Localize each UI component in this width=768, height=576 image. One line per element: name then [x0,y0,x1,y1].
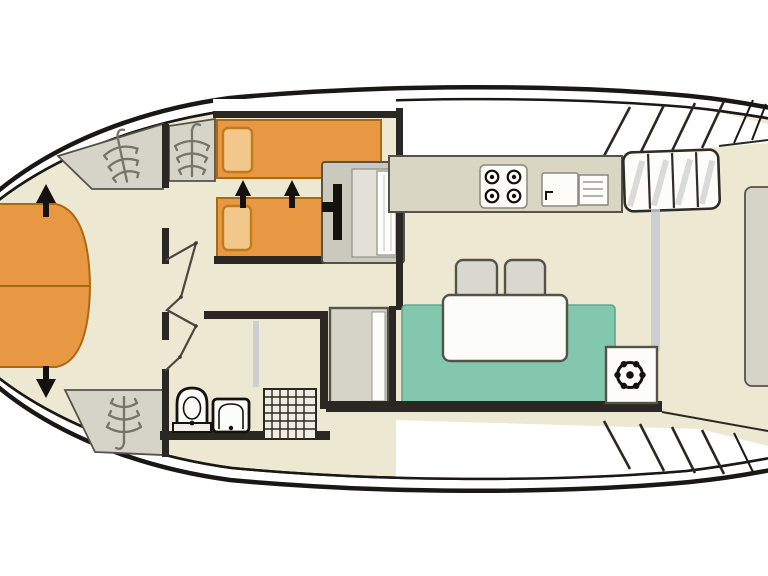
bed-foot-wall [214,256,331,264]
pillow [223,206,251,250]
toilet-icon [173,388,211,432]
galley [389,156,622,212]
cabin-aft-wall [651,209,660,351]
pillow [223,128,252,172]
salon-door-panel [330,306,396,405]
bathroom-top-wall [204,311,328,319]
salon-table [443,295,567,361]
stove-icon [480,165,527,208]
bathroom-right-wall [320,311,328,409]
shower-rail [253,321,259,387]
washbasin-icon [213,399,249,432]
companionway-window [623,149,720,211]
sink-icon [542,173,608,206]
single-bed-bottom [217,198,327,258]
stern-bench [745,187,768,386]
helm-station [606,347,657,403]
boat-floorplan [0,0,768,576]
wardrobe-mid-top [169,119,215,181]
cabin-top-wall [213,111,396,118]
floorplan-canvas [0,0,768,576]
shower-grid-icon [264,389,316,439]
